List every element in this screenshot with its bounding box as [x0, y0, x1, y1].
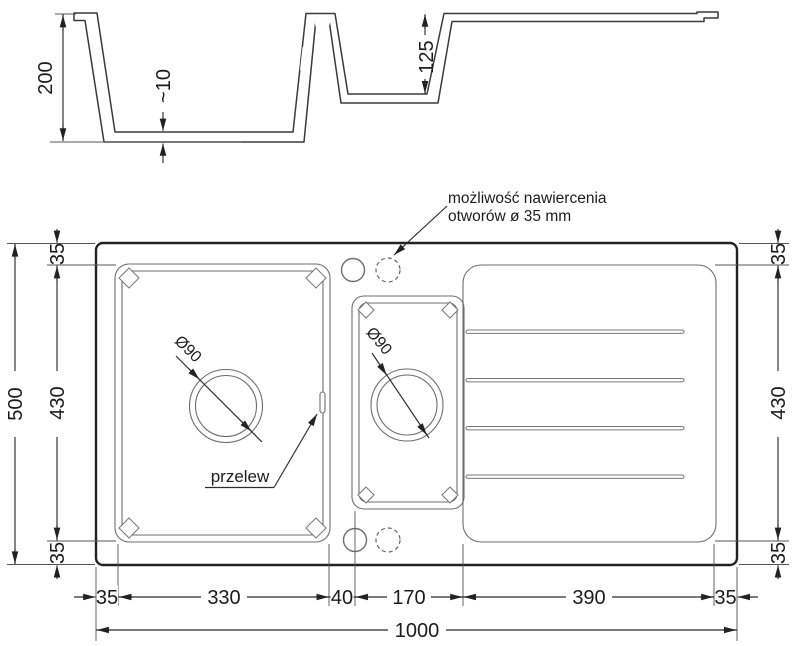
- drainboard: [463, 265, 716, 542]
- dim-bottom-seg1: 330: [207, 587, 240, 609]
- optional-hole-bottom: [376, 528, 400, 552]
- drainboard-groove: [466, 379, 684, 382]
- drawing-canvas: 200 ~10 125 Ø90: [0, 0, 800, 646]
- section-view: 200 ~10 125: [35, 12, 718, 163]
- drainboard-groove: [466, 427, 684, 430]
- dim-bottom-seg4: 390: [572, 587, 605, 609]
- optional-hole-top: [376, 258, 400, 282]
- small-bowl: Ø90: [352, 296, 464, 509]
- dim-bottom-thickness: ~10: [153, 69, 175, 103]
- overflow-label: przelew: [211, 467, 270, 486]
- dim-bottom-seg3: 170: [392, 587, 425, 609]
- overflow-slot: [320, 392, 325, 413]
- sink-technical-drawing: 200 ~10 125 Ø90: [0, 0, 800, 646]
- dim-right-top: 35: [768, 243, 790, 265]
- dim-bottom-total: 1000: [395, 620, 440, 642]
- dim-right-bottom: 35: [768, 542, 790, 564]
- dim-left-top: 35: [47, 243, 69, 265]
- drill-annotation-line2: otworów ø 35 mm: [448, 208, 571, 225]
- main-drain-label: Ø90: [171, 333, 204, 366]
- dim-left-middle: 430: [47, 386, 69, 419]
- main-bowl: Ø90: [115, 264, 330, 542]
- main-bowl-drain-gap: [171, 134, 236, 141]
- plan-view: Ø90 Ø90: [96, 190, 737, 565]
- dim-left-total: 500: [5, 387, 27, 420]
- sink-outline: [96, 243, 737, 565]
- dim-right-middle: 430: [768, 386, 790, 419]
- drainboard-groove: [466, 330, 684, 333]
- dim-left-bottom: 35: [47, 542, 69, 564]
- dims-right: 35 430 35: [715, 229, 790, 579]
- dims-left: 500 35 430 35: [5, 229, 116, 579]
- drainboard-groove: [466, 475, 684, 478]
- small-bowl-drain-gap: [360, 96, 406, 102]
- dims-bottom: 35 330 40 170 390 35 1000: [74, 511, 758, 642]
- divider-notch: [313, 16, 332, 40]
- tap-hole-top: [342, 259, 365, 282]
- drill-annotation: możliwość nawiercenia otworów ø 35 mm: [394, 190, 607, 255]
- drill-annotation-line1: możliwość nawiercenia: [448, 190, 607, 207]
- dim-depth-total: 200: [35, 61, 57, 94]
- dim-bottom-seg2: 40: [331, 587, 353, 609]
- dim-bottom-seg0: 35: [96, 587, 118, 609]
- small-drain-label: Ø90: [362, 324, 395, 358]
- dim-bottom-seg5: 35: [714, 587, 736, 609]
- dim-small-bowl-depth: 125: [416, 40, 438, 73]
